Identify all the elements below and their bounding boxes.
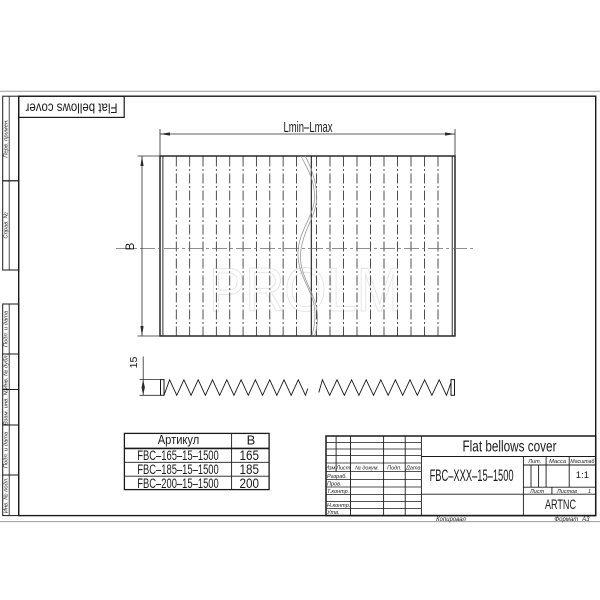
svg-text:Взам. инв. №: Взам. инв. № <box>4 389 10 425</box>
svg-text:Формат: Формат <box>554 517 578 523</box>
svg-text:Листов: Листов <box>556 489 577 495</box>
svg-text:PROLM: PROLM <box>209 256 402 325</box>
svg-text:Справ. №: Справ. № <box>4 212 10 238</box>
svg-text:Flat bellows cover: Flat bellows cover <box>463 439 557 456</box>
svg-text:Подп. и дата: Подп. и дата <box>4 431 10 468</box>
svg-text:Масса: Масса <box>549 459 566 465</box>
svg-text:Масштаб: Масштаб <box>570 459 595 465</box>
svg-text:1: 1 <box>588 489 591 495</box>
svg-text:Flat bellows cover: Flat bellows cover <box>25 100 117 116</box>
svg-text:Разраб.: Разраб. <box>327 474 347 480</box>
svg-text:Инв. № подл.: Инв. № подл. <box>4 477 10 513</box>
svg-text:ARTNC: ARTNC <box>545 496 576 512</box>
svg-text:Подп.: Подп. <box>387 466 402 472</box>
svg-text:B: B <box>125 242 137 250</box>
svg-text:Подп. и дата: Подп. и дата <box>4 310 10 347</box>
svg-text:Утв.: Утв. <box>326 510 340 516</box>
svg-text:Инв. № дубл.: Инв. № дубл. <box>4 354 10 390</box>
svg-text:1:1: 1:1 <box>576 470 589 481</box>
svg-text:FBC–165–15–1500: FBC–165–15–1500 <box>137 448 219 463</box>
svg-text:Т.контр.: Т.контр. <box>327 489 349 495</box>
svg-text:FBC–XXX–15–1500: FBC–XXX–15–1500 <box>430 466 514 485</box>
svg-text:№ докум.: № докум. <box>355 466 379 472</box>
svg-text:Артикул: Артикул <box>158 432 200 447</box>
svg-text:Н.контр.: Н.контр. <box>327 503 350 509</box>
svg-text:FBC–185–15–1500: FBC–185–15–1500 <box>137 462 219 477</box>
svg-text:Lmin–Lmax: Lmin–Lmax <box>284 120 333 136</box>
svg-text:В: В <box>247 432 256 447</box>
svg-text:165: 165 <box>240 448 260 463</box>
svg-text:185: 185 <box>240 462 260 477</box>
svg-text:Пров.: Пров. <box>327 481 342 487</box>
svg-text:А3: А3 <box>581 517 590 523</box>
svg-text:Изм.: Изм. <box>325 466 337 472</box>
svg-text:200: 200 <box>240 476 260 491</box>
svg-text:Копировал: Копировал <box>436 517 466 523</box>
svg-text:Дата: Дата <box>405 466 421 472</box>
svg-text:Лист: Лист <box>529 489 545 495</box>
svg-text:FBC–200–15–1500: FBC–200–15–1500 <box>137 476 219 491</box>
svg-text:Лист: Лист <box>335 466 351 472</box>
svg-text:Лит.: Лит. <box>527 459 541 465</box>
svg-text:15: 15 <box>128 357 140 369</box>
svg-text:Перв. примен.: Перв. примен. <box>4 119 10 158</box>
